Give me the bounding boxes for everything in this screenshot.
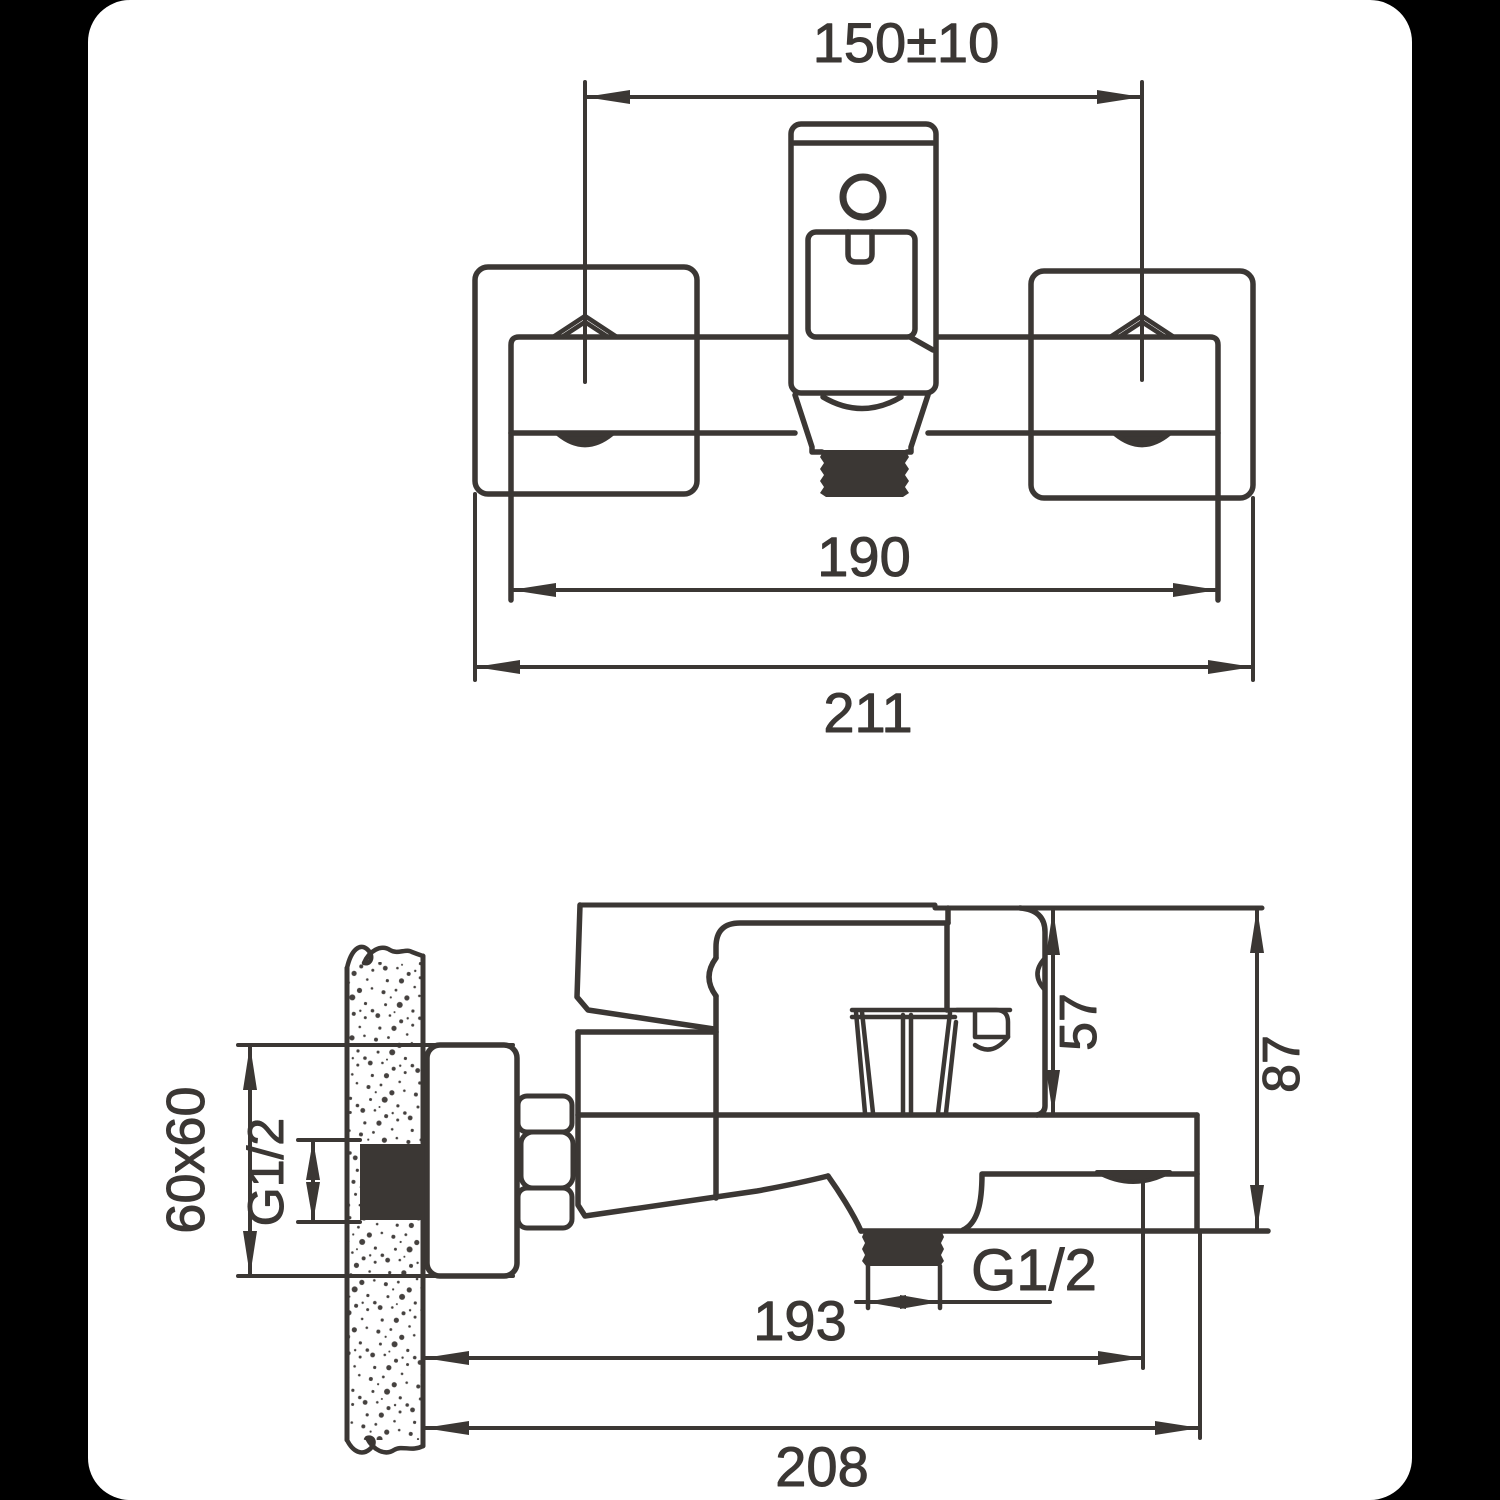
label-inlet-thread: G1/2: [238, 1118, 294, 1226]
side-body: [577, 905, 1268, 1308]
spout-mouth-notch: [1097, 1172, 1170, 1182]
dim-body-width: 190: [511, 525, 1218, 597]
side-handle-lever: [577, 905, 714, 1029]
front-diverter-unit: [791, 124, 936, 393]
label-height-to-body: 57: [1050, 993, 1108, 1051]
cartridge-internals: [852, 1010, 1010, 1113]
front-handle-notch: [848, 232, 872, 262]
side-outlet-thread: [862, 1230, 944, 1266]
front-spout-outlet: [795, 395, 928, 497]
diverter-hole: [843, 177, 883, 217]
label-body-width: 190: [817, 525, 910, 588]
dim-escutcheon-size: 60x60: [156, 1045, 513, 1276]
dim-mounting-distance: 150±10: [585, 11, 1142, 104]
product-dimension-diagram: 150±10 190 211: [0, 0, 1500, 1500]
front-outlet-thread: [820, 450, 909, 497]
label-escutcheon-size: 60x60: [156, 1086, 216, 1233]
side-view: 60x60 G1/2 57 87: [156, 905, 1311, 1498]
wall-section: [347, 947, 427, 1453]
inlet-pipe: [360, 1144, 427, 1220]
label-mounting-distance: 150±10: [813, 11, 999, 74]
side-escutcheon: [427, 1045, 517, 1276]
technical-drawing: 150±10 190 211: [0, 0, 1500, 1500]
dim-overall-height: 87: [1250, 908, 1311, 1230]
label-overall-height: 87: [1253, 1035, 1311, 1093]
dim-inlet-thread: G1/2: [238, 1118, 360, 1226]
label-overall-width: 211: [823, 681, 912, 744]
label-outlet-thread: G1/2: [971, 1238, 1097, 1303]
label-reach-to-outlet: 193: [753, 1289, 846, 1352]
front-handle-plate: [808, 232, 915, 337]
connection-nut: [518, 1096, 573, 1228]
dim-height-to-body: 57: [1046, 910, 1108, 1115]
label-overall-depth: 208: [775, 1435, 868, 1498]
front-view: 150±10 190 211: [475, 11, 1253, 744]
